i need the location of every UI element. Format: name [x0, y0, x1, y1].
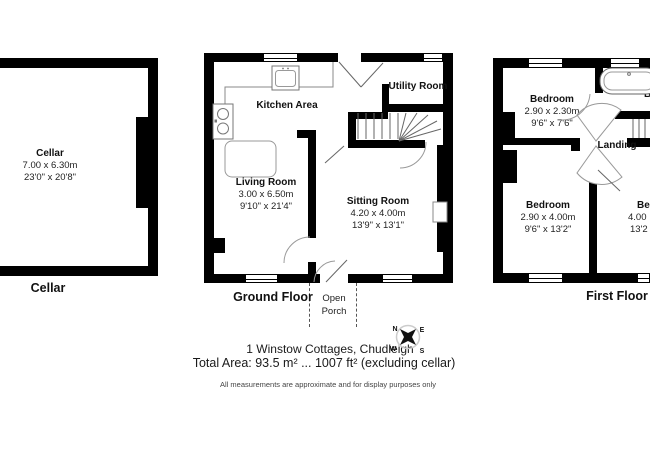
porch-line2: Porch: [310, 305, 358, 318]
stair-wall: [348, 140, 425, 148]
cellar-room-label: Cellar 7.00 x 6.30m 23'0" x 20'8": [0, 148, 100, 184]
compass-icon: N E W S: [388, 320, 428, 356]
window: [263, 53, 298, 62]
room-dim-imperial: 23'0" x 20'8": [0, 172, 100, 184]
interior-wall: [503, 138, 580, 145]
wall: [493, 273, 650, 283]
chimney-breast: [214, 238, 225, 253]
sink-icon: [272, 66, 299, 90]
room-name: Kitchen Area: [227, 100, 347, 112]
wall: [148, 58, 158, 276]
room-dim-imperial: 13'9" x 13'1": [328, 220, 428, 232]
room-dim-metric: 4.20 x 4.00m: [328, 208, 428, 220]
interior-wall: [308, 262, 316, 276]
utility-label: Utility Room: [368, 81, 468, 93]
bedroom-right-imperial-partial: 13'2: [630, 224, 648, 235]
bedroom-door-leaf: [598, 170, 620, 191]
room-dim-metric: 2.90 x 2.30m: [502, 106, 602, 118]
front-door-leaf: [326, 260, 347, 282]
kitchen-label: Kitchen Area: [227, 100, 347, 112]
utility-wall: [382, 104, 453, 112]
bedroom-right-metric-partial: 4.00: [628, 212, 647, 223]
compass-n: N: [392, 326, 397, 333]
porch-line1: Open: [310, 292, 358, 305]
stair-wall: [615, 111, 650, 119]
room-name: Bedroom: [502, 94, 602, 106]
room-dim-imperial: 9'6" x 13'2": [498, 224, 598, 236]
first-floor-title: First Floor: [555, 289, 650, 303]
compass-s: S: [420, 348, 425, 355]
window: [528, 58, 563, 68]
bedroom-right-name-partial: Be: [637, 200, 650, 211]
ground-floor-doors: [284, 62, 426, 282]
sofa-icon: [225, 141, 276, 177]
room-dim-imperial: 9'6" x 7'6": [502, 118, 602, 130]
window: [637, 273, 650, 283]
bathroom-label-partial: B: [644, 89, 650, 100]
sitting-room-label: Sitting Room 4.20 x 4.00m 13'9" x 13'1": [328, 196, 428, 232]
bedroom-left-label: Bedroom 2.90 x 4.00m 9'6" x 13'2": [498, 200, 598, 236]
room-name: Bedroom: [498, 200, 598, 212]
rear-door-leaf: [339, 62, 361, 87]
window: [610, 58, 640, 68]
bathroom-wall: [595, 68, 603, 93]
room-dim-imperial: 9'10" x 21'4": [216, 201, 316, 213]
wall: [204, 53, 214, 283]
chimney-breast: [136, 117, 148, 208]
room-dim-metric: 2.90 x 4.00m: [498, 212, 598, 224]
window: [423, 53, 443, 62]
window: [382, 274, 413, 283]
wall: [0, 58, 158, 68]
window: [245, 274, 278, 283]
living-room-label: Living Room 3.00 x 6.50m 9'10" x 21'4": [216, 177, 316, 213]
open-porch-label: Open Porch: [310, 292, 358, 318]
total-area-text: Total Area: 93.5 m² ... 1007 ft² (exclud…: [144, 356, 504, 370]
room-dim-metric: 7.00 x 6.30m: [0, 160, 100, 172]
sitting-door-leaf: [325, 146, 344, 163]
room-dim-metric: 3.00 x 6.50m: [216, 189, 316, 201]
wall: [493, 58, 503, 283]
bedroom-small-label: Bedroom 2.90 x 2.30m 9'6" x 7'6": [502, 94, 602, 130]
stair-wall: [348, 112, 356, 142]
cellar-title: Cellar: [0, 281, 96, 295]
staircase-first: [633, 119, 645, 138]
window: [528, 273, 563, 283]
chimney-breast: [503, 150, 517, 183]
wall: [0, 266, 158, 276]
kitchen-counter: [225, 62, 333, 104]
compass-e: E: [420, 327, 425, 334]
room-name: Living Room: [216, 177, 316, 189]
room-name: Utility Room: [368, 81, 468, 93]
floorplan-page: { "colors": {"wall": "#000000", "fixture…: [0, 0, 650, 450]
landing-label: Landing: [585, 140, 649, 151]
address-text: 1 Winstow Cottages, Chudleigh: [180, 342, 480, 356]
compass-w: W: [390, 346, 397, 353]
bathtub-icon: [600, 68, 650, 94]
disclaimer-text: All measurements are approximate and for…: [168, 380, 488, 389]
landing-door-arc: [577, 146, 622, 184]
interior-wall: [297, 130, 316, 138]
chimney-breast: [437, 145, 453, 252]
room-name: Sitting Room: [328, 196, 428, 208]
interior-wall: [571, 138, 580, 151]
living-door-arc: [284, 237, 310, 263]
room-name: Cellar: [0, 148, 100, 160]
